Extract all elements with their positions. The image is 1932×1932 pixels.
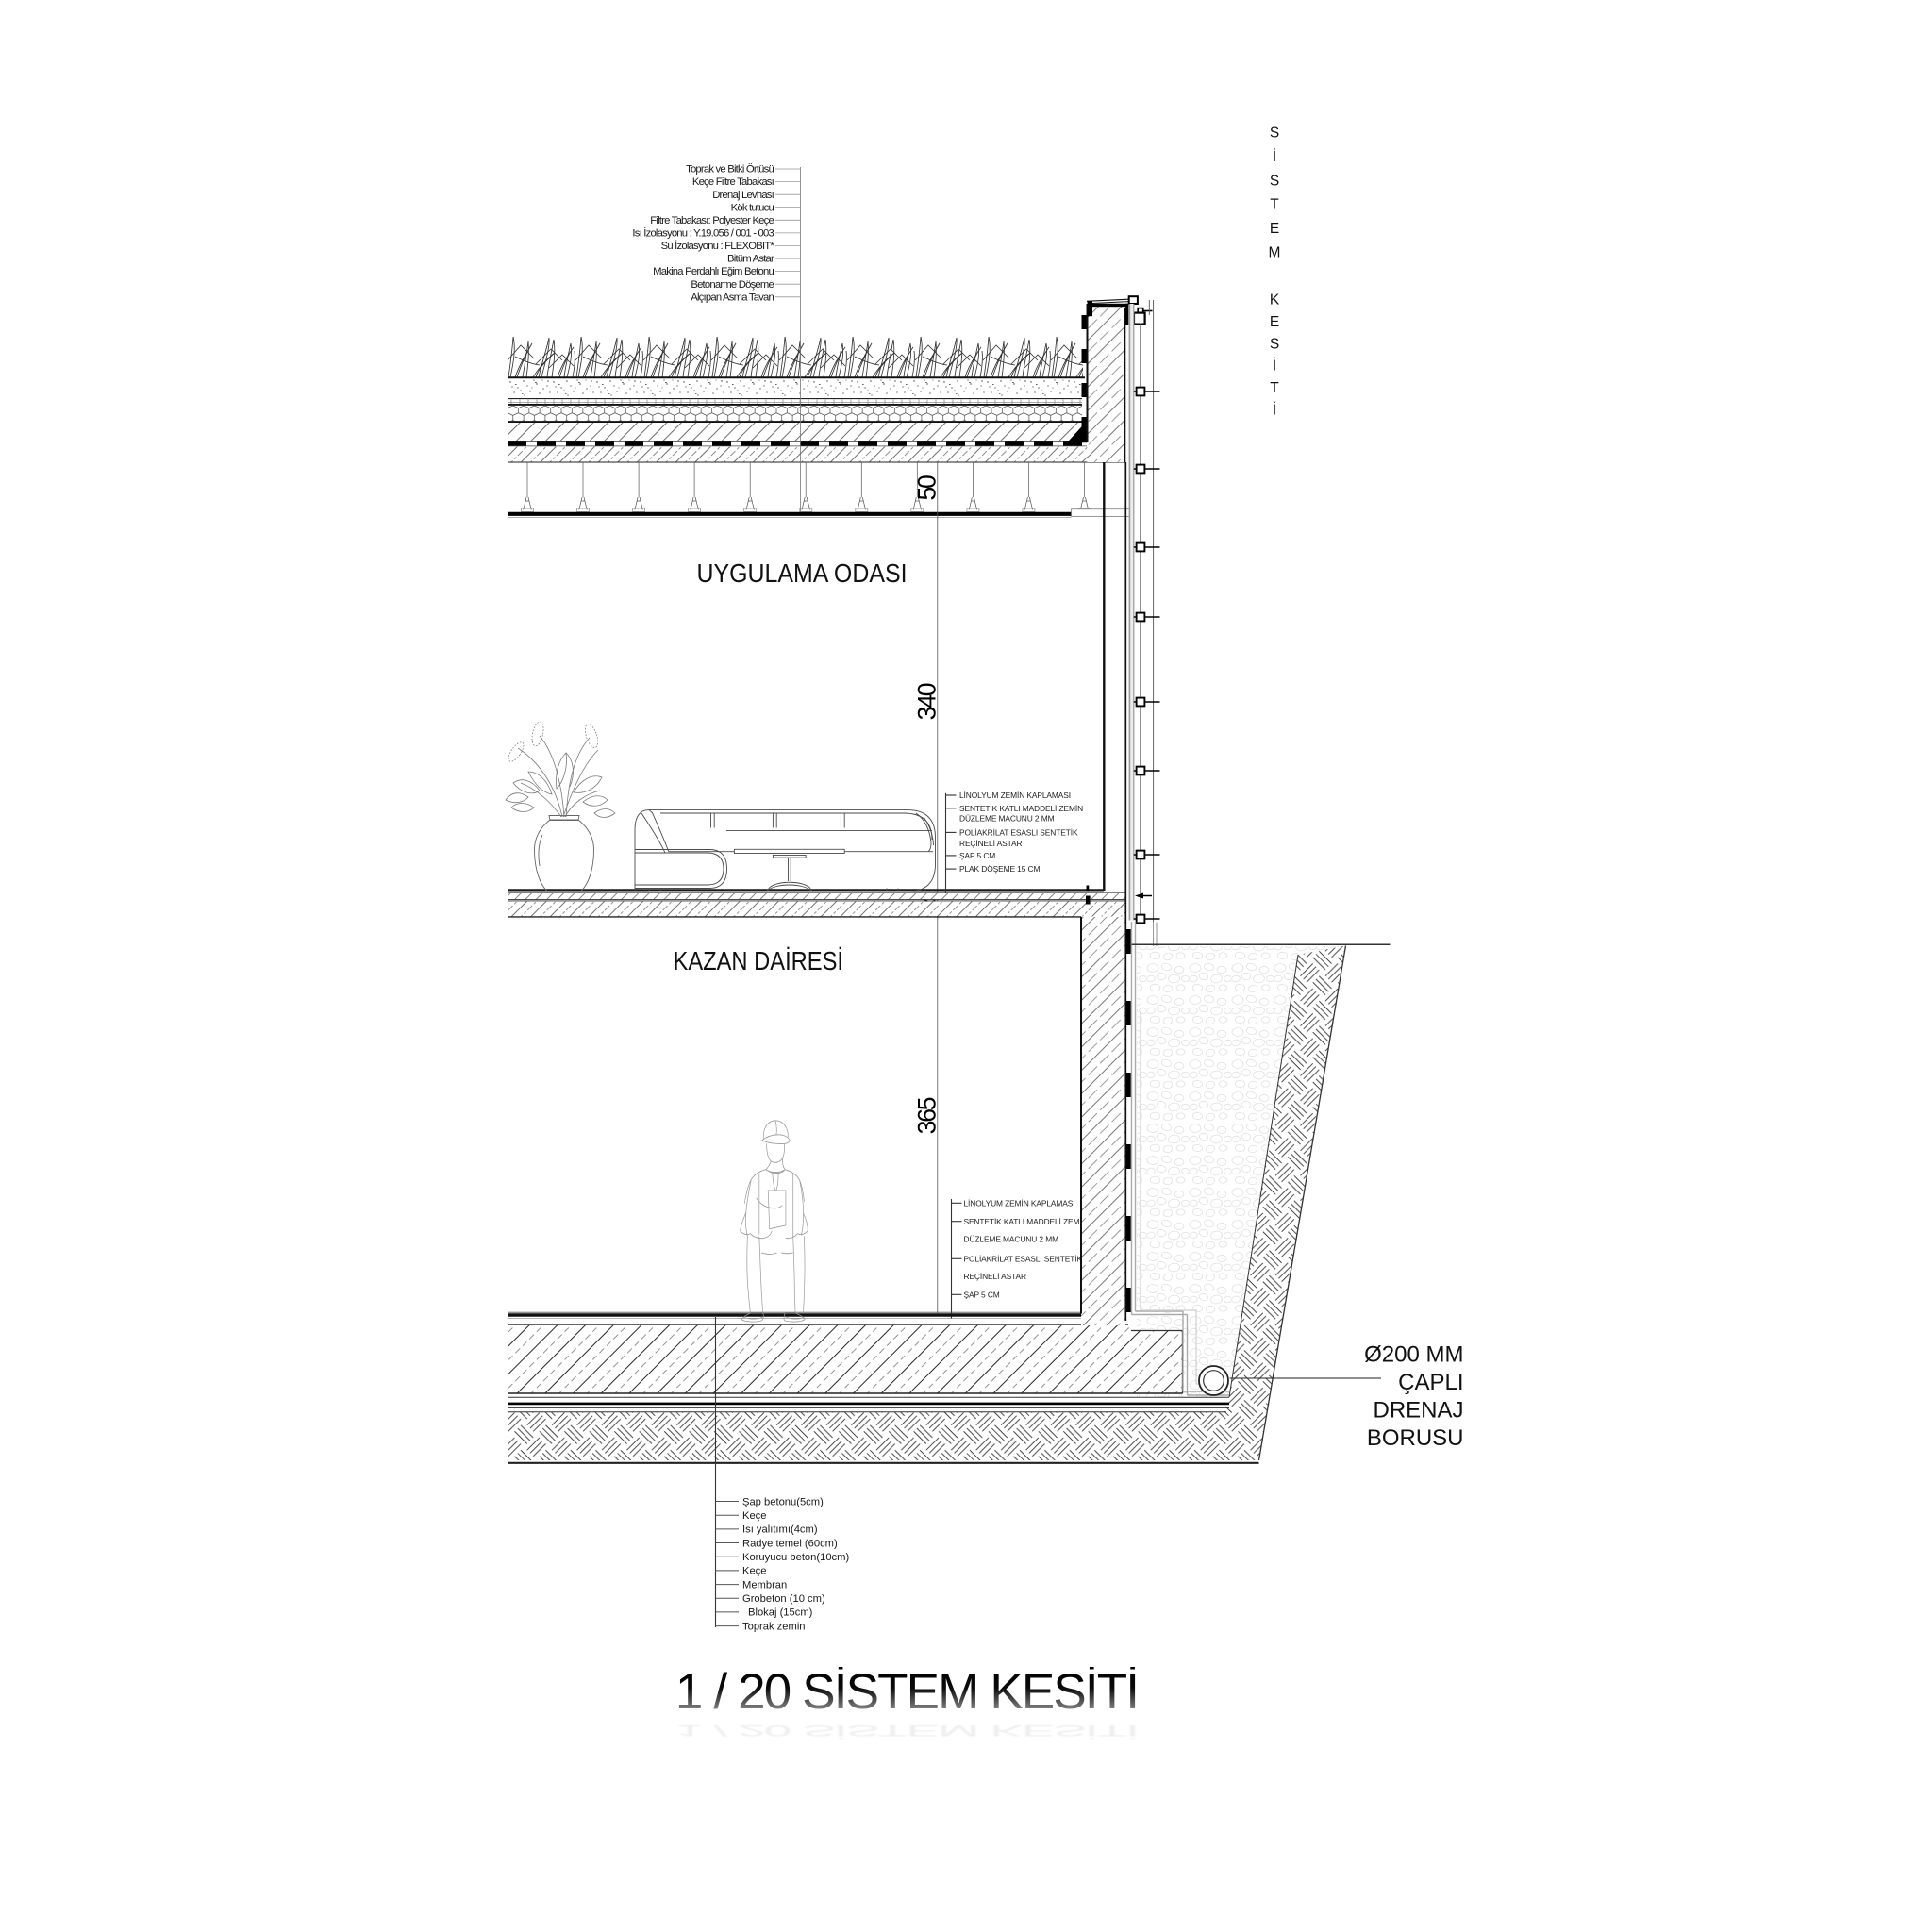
svg-text:Bitüm Astar: Bitüm Astar (727, 254, 774, 265)
svg-text:KAZAN DAİRESİ: KAZAN DAİRESİ (674, 946, 844, 975)
svg-text:Su İzolasyonu : FLEXOBIT*: Su İzolasyonu : FLEXOBIT* (661, 240, 775, 252)
svg-text:Kök tutucu: Kök tutucu (731, 202, 774, 213)
svg-text:Toprak zemin: Toprak zemin (742, 1621, 806, 1632)
svg-text:Membran: Membran (742, 1579, 787, 1591)
svg-text:LİNOLYUM ZEMİN KAPLAMASI: LİNOLYUM ZEMİN KAPLAMASI (964, 1198, 1075, 1207)
svg-text:Isı yalıtımı(4cm): Isı yalıtımı(4cm) (742, 1524, 818, 1536)
svg-text:Ø200 MM: Ø200 MM (1364, 1342, 1463, 1368)
svg-text:Makina Perdahlı Eğim Betonu: Makina Perdahlı Eğim Betonu (653, 266, 774, 277)
svg-text:ÇAPLI: ÇAPLI (1398, 1370, 1463, 1395)
svg-text:E: E (1270, 314, 1279, 330)
svg-text:340: 340 (913, 683, 941, 720)
svg-text:T: T (1270, 380, 1279, 396)
svg-text:Drenaj Levhası: Drenaj Levhası (712, 190, 774, 201)
svg-text:REÇİNELİ ASTAR: REÇİNELİ ASTAR (964, 1272, 1026, 1281)
svg-text:PLAK DÖŞEME 15 CM: PLAK DÖŞEME 15 CM (959, 864, 1040, 874)
svg-text:İ: İ (1273, 402, 1276, 419)
svg-text:M: M (1269, 245, 1281, 261)
svg-text:Filtre Tabakası: Polyester Keç: Filtre Tabakası: Polyester Keçe (650, 215, 774, 226)
svg-text:POLİAKRİLAT ESASLI SENTETİK: POLİAKRİLAT ESASLI SENTETİK (959, 828, 1078, 838)
svg-text:Betonarme Döşeme: Betonarme Döşeme (691, 279, 774, 291)
svg-text:REÇİNELİ ASTAR: REÇİNELİ ASTAR (959, 839, 1022, 848)
svg-text:S: S (1270, 173, 1279, 189)
svg-text:DRENAJ: DRENAJ (1373, 1398, 1463, 1424)
svg-text:POLİAKRİLAT ESASLI SENTETİK: POLİAKRİLAT ESASLI SENTETİK (964, 1254, 1083, 1263)
svg-text:E: E (1270, 221, 1279, 237)
svg-text:DÜZLEME MACUNU 2 MM: DÜZLEME MACUNU 2 MM (959, 814, 1055, 824)
svg-text:BORUSU: BORUSU (1367, 1425, 1464, 1451)
svg-text:K: K (1270, 292, 1280, 308)
svg-text:Alçıpan Asma Tavan: Alçıpan Asma Tavan (691, 291, 774, 303)
svg-text:Isı İzolasyonu : Y.19.056 / 00: Isı İzolasyonu : Y.19.056 / 001 - 003 (632, 227, 774, 240)
svg-text:Keçe: Keçe (742, 1510, 767, 1522)
svg-text:DÜZLEME MACUNU 2 MM: DÜZLEME MACUNU 2 MM (964, 1234, 1059, 1243)
svg-text:Toprak ve Bitki Örtüsü: Toprak ve Bitki Örtüsü (686, 164, 774, 175)
svg-text:365: 365 (913, 1097, 941, 1134)
svg-text:S: S (1270, 336, 1279, 352)
svg-text:SENTETİK KATLI MADDELİ ZEMİN: SENTETİK KATLI MADDELİ ZEMİN (959, 804, 1083, 813)
svg-text:LİNOLYUM ZEMİN KAPLAMASI: LİNOLYUM ZEMİN KAPLAMASI (959, 791, 1071, 800)
svg-text:İ: İ (1273, 148, 1276, 165)
svg-text:ŞAP 5 CM: ŞAP 5 CM (959, 851, 995, 860)
svg-text:SENTETİK KATLI MADDELİ ZEMİN: SENTETİK KATLI MADDELİ ZEMİN (964, 1217, 1088, 1226)
svg-text:ŞAP 5 CM: ŞAP 5 CM (964, 1290, 1000, 1299)
svg-text:Şap betonu(5cm): Şap betonu(5cm) (742, 1496, 824, 1507)
svg-text:Keçe Filtre Tabakası: Keçe Filtre Tabakası (692, 176, 774, 188)
svg-text:T: T (1270, 197, 1279, 213)
svg-text:Keçe: Keçe (742, 1566, 767, 1577)
svg-text:Koruyucu beton(10cm): Koruyucu beton(10cm) (742, 1552, 849, 1563)
svg-text:S: S (1270, 125, 1279, 142)
svg-text:Grobeton (10 cm): Grobeton (10 cm) (742, 1593, 825, 1605)
svg-text:50: 50 (913, 475, 941, 501)
svg-text:Radye temel (60cm): Radye temel (60cm) (742, 1538, 838, 1549)
svg-text:Blokaj (15cm): Blokaj (15cm) (748, 1607, 813, 1619)
svg-text:İ: İ (1273, 358, 1276, 375)
svg-text:UYGULAMA ODASI: UYGULAMA ODASI (697, 558, 908, 588)
